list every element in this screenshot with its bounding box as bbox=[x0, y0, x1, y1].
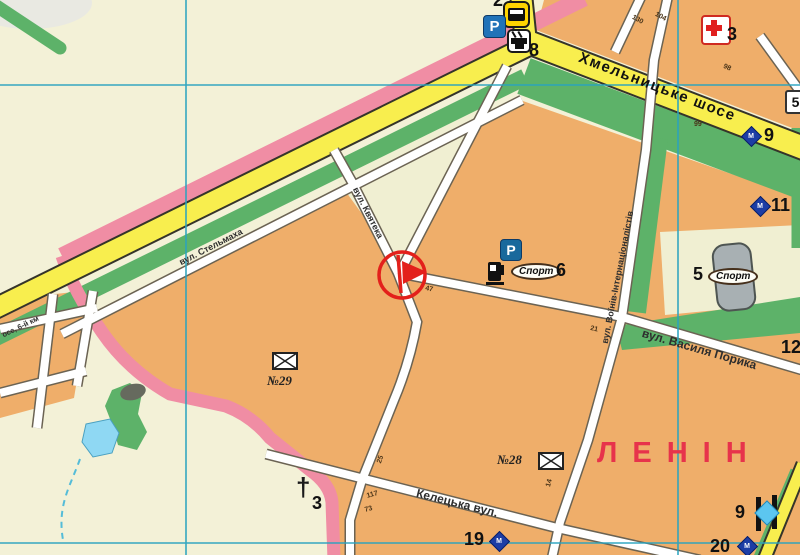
post-office-29-label: №29 bbox=[267, 374, 292, 388]
memorial-gate-icon[interactable] bbox=[751, 494, 785, 534]
monument-icon-9[interactable]: М bbox=[741, 126, 761, 146]
parking-icon-2[interactable]: P bbox=[500, 239, 522, 261]
post-office-icon-29[interactable] bbox=[272, 352, 298, 375]
poi-number-6: 6 bbox=[556, 261, 566, 280]
poi-number-11: 11 bbox=[771, 196, 790, 215]
church-cross-icon[interactable]: † bbox=[296, 474, 310, 501]
church-number: 3 bbox=[312, 494, 322, 513]
sport-club-label[interactable]: Спорт bbox=[511, 263, 561, 280]
poi-number-2: 2 bbox=[493, 0, 503, 10]
bus-stop-icon[interactable] bbox=[503, 1, 530, 28]
monument-icon-20[interactable]: М bbox=[737, 536, 757, 555]
parking-icon[interactable]: P bbox=[483, 15, 506, 38]
poi-number-8: 8 bbox=[529, 41, 539, 60]
district-name: ЛЕНІН bbox=[597, 438, 762, 468]
sport-stadium-label[interactable]: Спорт bbox=[708, 268, 758, 285]
map-canvas bbox=[0, 0, 800, 555]
poi-number-9b: 9 bbox=[735, 503, 745, 522]
house-number: 47 bbox=[424, 285, 433, 294]
post-office-28-label: №28 bbox=[497, 453, 522, 467]
poi-number-20: 20 bbox=[710, 537, 730, 555]
poi-badge-5: 5 bbox=[785, 90, 800, 114]
hospital-number: 3 bbox=[727, 25, 737, 44]
poi-number-19: 19 bbox=[464, 530, 484, 549]
house-number: 99 bbox=[694, 121, 702, 128]
poi-number-12: 12 bbox=[781, 338, 800, 357]
trolleybus-stop-icon[interactable] bbox=[507, 29, 531, 53]
poi-number-5: 5 bbox=[693, 265, 703, 284]
monument-icon-11[interactable]: М bbox=[750, 196, 770, 216]
city-map: Хмельницьке шосе вул. Стельмаха вул. Квя… bbox=[0, 0, 800, 555]
poi-number-9: 9 bbox=[764, 126, 774, 145]
house-number: 21 bbox=[589, 325, 598, 334]
fuel-station-icon[interactable] bbox=[486, 260, 506, 287]
monument-icon-19[interactable]: М bbox=[489, 531, 509, 551]
post-office-icon-28[interactable] bbox=[538, 452, 564, 475]
